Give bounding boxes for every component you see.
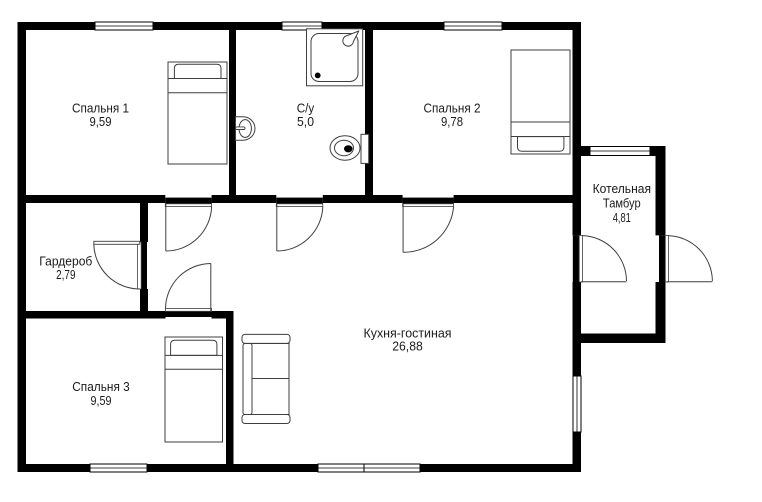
svg-text:5,0: 5,0 <box>297 114 314 129</box>
svg-text:4,81: 4,81 <box>613 210 631 225</box>
svg-text:Спальня 3: Спальня 3 <box>72 379 130 394</box>
svg-text:Котельная: Котельная <box>593 181 651 196</box>
svg-text:26,88: 26,88 <box>392 339 423 354</box>
svg-text:9,59: 9,59 <box>90 114 112 129</box>
svg-text:9,78: 9,78 <box>441 114 463 129</box>
svg-text:2,79: 2,79 <box>56 267 75 282</box>
svg-text:9,59: 9,59 <box>91 393 112 408</box>
svg-text:Тамбур: Тамбур <box>603 195 641 210</box>
